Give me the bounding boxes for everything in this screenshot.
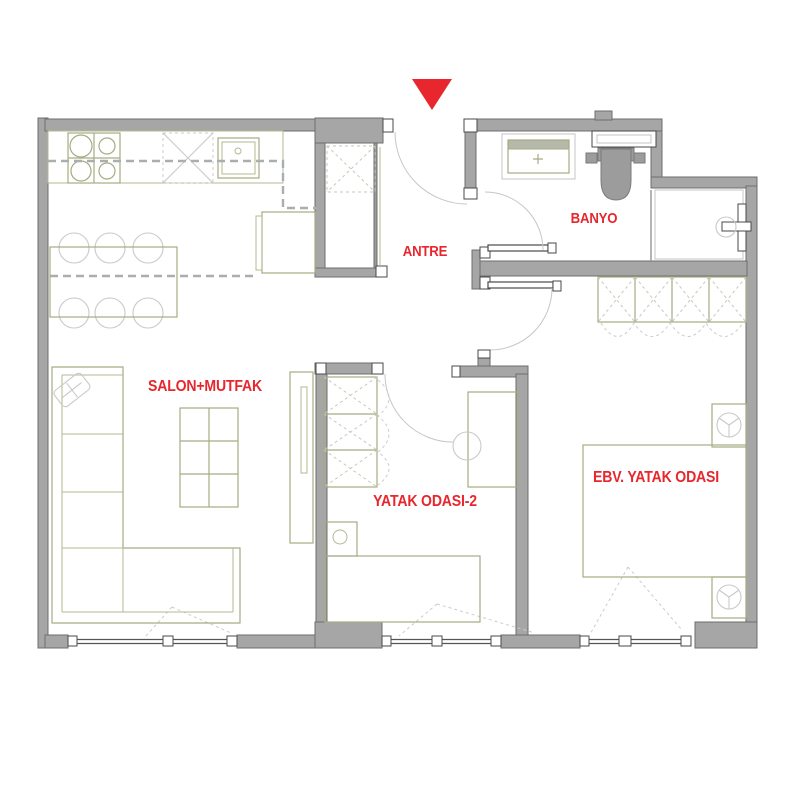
wall-right: [746, 186, 757, 648]
wall-mid-thick: [473, 261, 747, 276]
coffee-table-icon: [180, 408, 238, 507]
mirror-shelf-icon: [592, 131, 656, 147]
room-label-banyo: BANYO: [571, 209, 618, 226]
walls: [38, 111, 757, 648]
bathroom-fixtures: [502, 131, 751, 261]
beam-line-kitchen: [48, 161, 317, 208]
overhead-cabinet-x-icon: [163, 133, 213, 183]
kitchen: [48, 131, 317, 328]
wall-mid-joint: [472, 250, 480, 289]
wall-banyo-top: [468, 119, 662, 131]
shaft-frame: [376, 266, 387, 277]
ebv-door-leaf: [488, 282, 553, 288]
single-bed-icon: [325, 556, 480, 622]
ebv-door-jamb-frame: [478, 350, 490, 358]
nightstand-lamp-icon: [325, 522, 357, 556]
room-label-antre: ANTRE: [403, 242, 448, 259]
wall-stub-top: [595, 111, 612, 120]
desk-chair-icon: [453, 432, 481, 460]
wall-left: [38, 118, 48, 648]
stove-4-burners-icon: [68, 133, 120, 183]
room-label-ebv: EBV. YATAK ODASI: [593, 468, 719, 486]
yatak2-door-swing-arc: [385, 374, 453, 442]
corner-sofa-icon: [52, 367, 240, 623]
wall-shaft-right: [374, 143, 377, 273]
wall-shaft-bottom: [315, 268, 383, 277]
wall-shaft-left: [315, 143, 325, 277]
passage-frame-right: [372, 363, 383, 374]
toilet-icon: [586, 148, 645, 200]
wall-bottom-p5: [695, 622, 757, 648]
vanity-sink-icon: [502, 134, 575, 179]
floor-plan-svg: SALON+MUTFAK ANTRE BANYO YATAK ODASI-2 E…: [0, 0, 800, 800]
master-bedroom-furniture: [583, 277, 746, 618]
salon-furniture: [52, 367, 313, 623]
wall-bedroom-divider: [516, 374, 528, 637]
wall-bottom-p3: [315, 622, 382, 648]
banyo-door-leaf: [488, 245, 548, 251]
kitchen-island-icon: [256, 212, 315, 273]
room-label-salon: SALON+MUTFAK: [148, 377, 262, 395]
wall-top: [45, 119, 317, 131]
wall-bottom-p2: [237, 635, 315, 648]
tv-unit-icon: [290, 372, 313, 543]
wall-banyo-left: [465, 131, 476, 190]
wall-bottom-p1: [45, 635, 68, 648]
banyo-door-swing-arc: [485, 192, 543, 250]
passage-frame-left: [316, 363, 326, 374]
utility-shaft: [327, 146, 380, 266]
room-labels: SALON+MUTFAK ANTRE BANYO YATAK ODASI-2 E…: [148, 209, 719, 510]
dining-table-icon: [50, 247, 177, 317]
double-bed-icon: [583, 445, 746, 577]
throw-pillow-icon: [52, 372, 91, 409]
nightstand-lamp-icon: [712, 577, 746, 618]
entrance-arrow-icon: [412, 79, 452, 110]
room-label-yatak2: YATAK ODASI-2: [373, 492, 477, 510]
entry-door-swing-arc: [395, 132, 467, 204]
floor-plan-canvas: SALON+MUTFAK ANTRE BANYO YATAK ODASI-2 E…: [0, 0, 800, 800]
entry-door-frame-right: [464, 119, 477, 132]
nightstand-lamp-icon: [712, 404, 746, 447]
shower-area: [651, 190, 751, 261]
banyo-door-frame: [464, 188, 477, 199]
yatak2-door-frame: [452, 366, 460, 377]
wardrobe-3-section-icon: [324, 377, 389, 487]
wall-shaft-block: [315, 118, 383, 143]
desk-icon: [468, 392, 517, 487]
wall-bottom-p4: [501, 635, 580, 648]
wardrobe-4-section-icon: [598, 277, 746, 337]
window-opening-hint-salon: [146, 607, 231, 636]
wall-topright: [651, 177, 757, 188]
shower-set-icon: [716, 204, 751, 251]
window-opening-hint-yatak2: [399, 604, 535, 636]
kitchen-sink-icon: [218, 138, 259, 178]
banyo-door-tip: [548, 243, 556, 253]
ebv-door-swing-arc: [490, 288, 552, 350]
entry-door-frame-left: [383, 119, 393, 132]
ebv-door-tip: [553, 281, 561, 291]
